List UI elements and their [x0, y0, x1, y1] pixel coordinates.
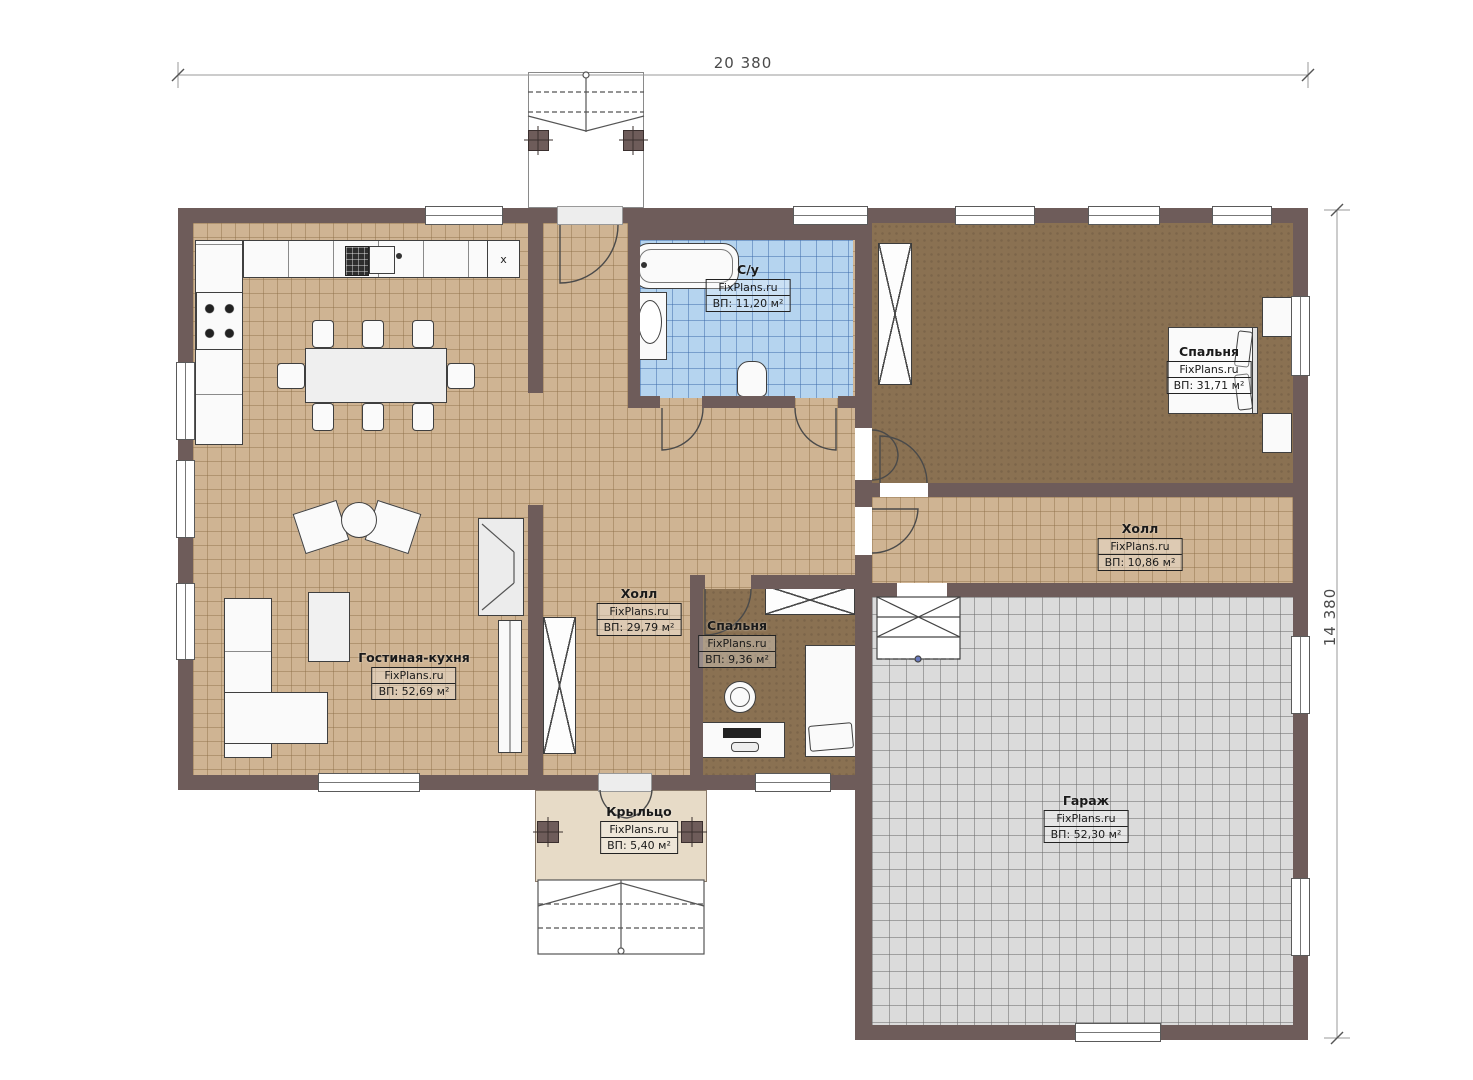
window: [1291, 878, 1310, 956]
room-brand: FixPlans.ru: [699, 636, 775, 652]
room-label-hall-main: Холл FixPlans.ruВП: 29,79 м²: [597, 586, 682, 636]
window: [176, 583, 195, 660]
wall-central: [855, 480, 872, 507]
wardrobe: [765, 585, 855, 615]
room-area: ВП: 31,71 м²: [1168, 378, 1251, 393]
porch-column: [528, 130, 549, 151]
washbasin-bowl: [638, 300, 662, 344]
room-name: Спальня: [698, 618, 776, 633]
room-area: ВП: 29,79 м²: [598, 620, 681, 635]
porch-column: [537, 821, 559, 843]
room-brand: FixPlans.ru: [598, 604, 681, 620]
dimension-top-label: 20 380: [703, 54, 783, 72]
window: [1291, 296, 1310, 376]
room-area: ВП: 9,36 м²: [699, 652, 775, 667]
room-name: Спальня: [1167, 344, 1252, 359]
room-brand: FixPlans.ru: [1168, 362, 1251, 378]
dining-chair: [312, 320, 334, 348]
dimension-right-label: 14 380: [1321, 577, 1339, 657]
dining-chair: [362, 403, 384, 431]
dining-chair: [362, 320, 384, 348]
room-brand: FixPlans.ru: [1045, 811, 1128, 827]
window: [1212, 206, 1272, 225]
dining-table: [305, 348, 447, 403]
room-brand: FixPlans.ru: [373, 668, 456, 684]
window: [176, 362, 195, 440]
room-label-garage: Гараж FixPlans.ruВП: 52,30 м²: [1044, 793, 1129, 843]
wall-central: [855, 398, 872, 428]
nightstand: [1262, 297, 1292, 337]
wall-interior: [528, 223, 543, 393]
room-name: Холл: [597, 586, 682, 601]
dining-chair: [412, 403, 434, 431]
wall-bathroom-left: [628, 237, 640, 408]
room-name: Гараж: [1044, 793, 1129, 808]
dining-chair: [277, 363, 305, 389]
room-label-bedroom-small: Спальня FixPlans.ruВП: 9,36 м²: [698, 618, 776, 668]
room-label-porch: Крыльцо FixPlans.ruВП: 5,40 м²: [600, 804, 678, 854]
room-name: Гостиная-кухня: [358, 650, 470, 665]
kitchen-appliance-unit: x: [487, 240, 520, 278]
wall-bedroom-hall: [872, 483, 880, 497]
wall-central: [855, 555, 872, 575]
wall-garage-left: [855, 575, 872, 1040]
room-label-hall-right: Холл FixPlans.ruВП: 10,86 м²: [1098, 521, 1183, 571]
wall-bedroom-small-top: [751, 575, 855, 589]
room-brand: FixPlans.ru: [601, 822, 677, 838]
room-area: ВП: 5,40 м²: [601, 838, 677, 853]
headboard: [1252, 327, 1258, 414]
wall-bedroom-small-left: [690, 575, 703, 775]
floor-plan: x: [0, 0, 1473, 1080]
sofa-chaise: [224, 692, 328, 744]
room-brand: FixPlans.ru: [707, 280, 790, 296]
window: [793, 206, 868, 225]
fireplace: [478, 518, 524, 616]
room-brand: FixPlans.ru: [1099, 539, 1182, 555]
wall-bedroom-hall: [928, 483, 1293, 497]
wardrobe: [543, 617, 576, 754]
stairs-bottom-porch: [538, 880, 704, 954]
kitchen-sink-drainer: [369, 246, 395, 274]
window: [1291, 636, 1310, 714]
tv-cabinet: [498, 620, 522, 753]
wall-hall-garage: [947, 583, 1293, 597]
room-label-bedroom-main: Спальня FixPlans.ruВП: 31,71 м²: [1167, 344, 1252, 394]
window: [425, 206, 503, 225]
room-area: ВП: 52,30 м²: [1045, 827, 1128, 842]
dining-chair: [312, 403, 334, 431]
dining-chair: [447, 363, 475, 389]
wall-bathroom-top: [628, 223, 855, 240]
porch-door-opening: [598, 773, 652, 792]
room-area: ВП: 11,20 м²: [707, 296, 790, 311]
kitchen-unit-marker: x: [500, 253, 507, 266]
nightstand: [1262, 413, 1292, 453]
round-side-table: [341, 502, 377, 538]
wall-hall-garage: [872, 583, 897, 597]
porch-column: [623, 130, 644, 151]
window: [955, 206, 1035, 225]
room-area: ВП: 10,86 м²: [1099, 555, 1182, 570]
pillow: [808, 722, 854, 752]
wall-bathroom-bottom: [702, 396, 795, 408]
toilet: [737, 361, 767, 397]
window: [318, 773, 420, 792]
kitchen-faucet: [396, 253, 402, 259]
coffee-table: [308, 592, 350, 662]
room-label-living-kitchen: Гостиная-кухня FixPlans.ruВП: 52,69 м²: [358, 650, 470, 700]
window: [1088, 206, 1160, 225]
wall-central: [855, 223, 872, 398]
porch-column: [681, 821, 703, 843]
potted-plant-inner: [730, 687, 750, 707]
wall-bathroom-bottom: [838, 396, 855, 408]
keyboard: [731, 742, 759, 752]
bathtub-faucet: [641, 262, 647, 268]
room-name: Крыльцо: [600, 804, 678, 819]
wall-bathroom-bottom: [628, 396, 660, 408]
room-name: Холл: [1098, 521, 1183, 536]
stove: [196, 292, 243, 350]
room-area: ВП: 52,69 м²: [373, 684, 456, 699]
wardrobe: [878, 243, 912, 385]
window: [1075, 1023, 1161, 1042]
room-name: С/у: [706, 262, 791, 277]
floor-hall-right: [872, 497, 1293, 583]
window: [176, 460, 195, 538]
dining-chair: [412, 320, 434, 348]
front-door-opening: [557, 206, 623, 225]
kitchen-sink-basin: [345, 246, 369, 276]
window: [755, 773, 831, 792]
monitor: [723, 728, 761, 738]
wall-interior: [528, 505, 543, 775]
room-label-bathroom: С/у FixPlans.ruВП: 11,20 м²: [706, 262, 791, 312]
